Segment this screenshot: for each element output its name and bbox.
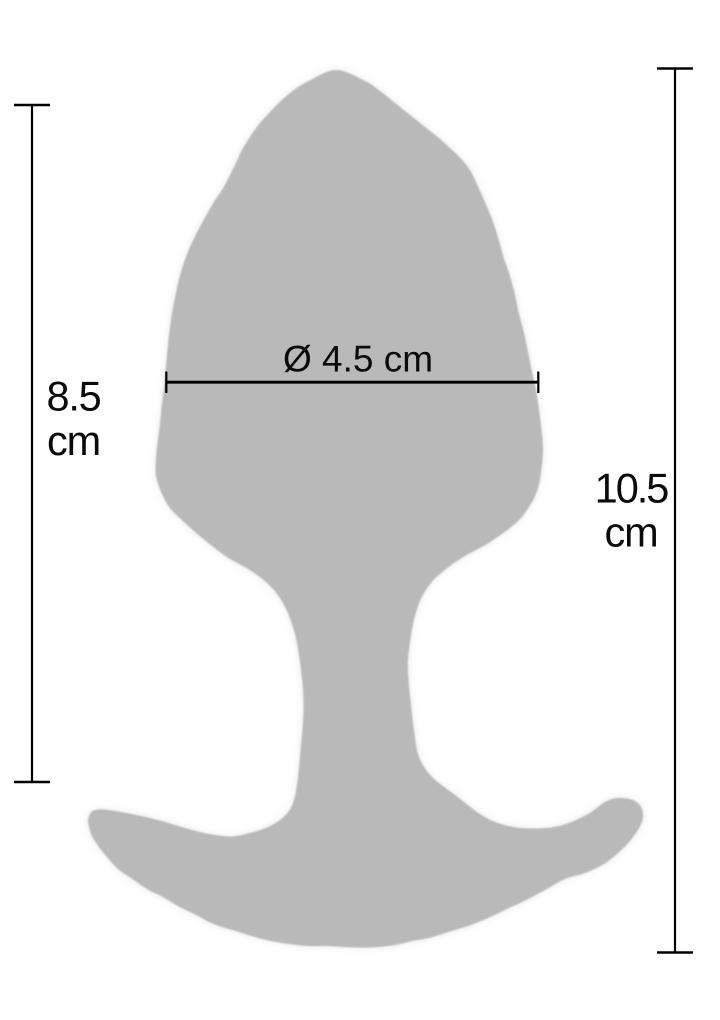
svg-text:Ø 4.5 cm: Ø 4.5 cm bbox=[283, 338, 433, 379]
svg-text:8.5: 8.5 bbox=[46, 373, 100, 420]
svg-text:10.5: 10.5 bbox=[595, 465, 669, 512]
svg-text:cm: cm bbox=[605, 508, 658, 555]
svg-text:cm: cm bbox=[47, 417, 100, 464]
